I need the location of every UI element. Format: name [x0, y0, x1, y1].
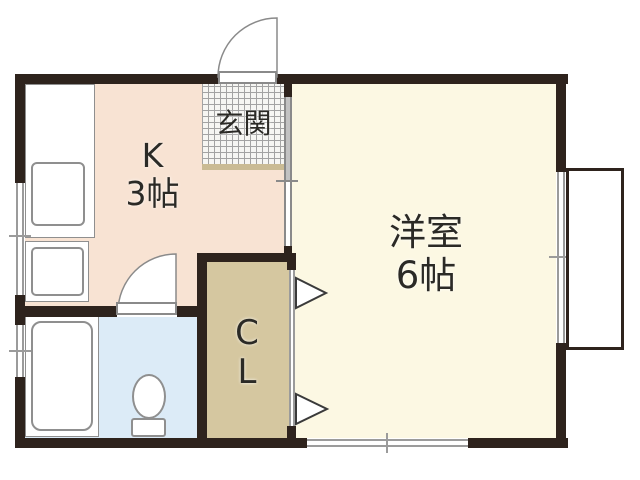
partition-door-upper	[284, 97, 292, 180]
window-left-upper	[16, 183, 24, 295]
western-room-label: 洋室 6帖	[346, 206, 506, 304]
western-room-label-line1: 洋室	[389, 212, 463, 255]
kitchen-label-line2: 3帖	[126, 175, 180, 213]
outer-wall-bottom-left-segment	[15, 438, 307, 448]
outer-wall-top-left-segment	[15, 74, 218, 84]
toilet-bowl	[132, 374, 166, 419]
entrance-door-arc	[218, 18, 277, 77]
outer-wall-right-lower	[556, 343, 566, 448]
floor-plan: 玄関 K 3帖 洋室 6帖 C L	[0, 0, 640, 480]
washer-pan-inner	[31, 247, 84, 296]
outer-wall-bottom-right-segment	[468, 438, 568, 448]
bathroom-wall-left-segment	[15, 306, 117, 317]
window-left-lower-tick	[9, 350, 31, 352]
window-left-upper-tick	[9, 235, 31, 237]
western-room-label-line2: 6帖	[396, 255, 457, 298]
entrance-door-slab	[218, 71, 277, 84]
kitchen-label-line1: K	[142, 137, 164, 175]
closet-stub-bottom-right	[287, 426, 296, 441]
window-bottom-tick	[386, 433, 388, 453]
outer-wall-top-right-segment	[277, 74, 568, 84]
closet-label-line2: L	[238, 353, 257, 392]
partition-stub-bottom	[284, 246, 292, 256]
right-window-bay	[566, 168, 624, 350]
kitchen-label: K 3帖	[95, 130, 210, 220]
entrance-label-text: 玄関	[215, 108, 271, 140]
bathtub-inner	[31, 321, 93, 431]
partition-door-lower	[284, 182, 292, 246]
partition-stub-top	[284, 84, 292, 97]
closet-wall-top	[197, 253, 296, 262]
outer-wall-right-upper	[556, 74, 566, 172]
closet-wall-left	[197, 253, 207, 448]
closet-fold-door-track	[289, 270, 295, 426]
entrance-label: 玄関	[202, 84, 285, 164]
closet-label: C L	[225, 310, 269, 396]
kitchen-sink	[31, 162, 85, 226]
closet-label-line1: C	[235, 314, 259, 353]
outer-wall-left-upper	[15, 74, 25, 183]
bath-door-slab	[116, 302, 177, 315]
entrance-step-edge	[202, 164, 285, 170]
toilet-tank	[131, 418, 166, 437]
